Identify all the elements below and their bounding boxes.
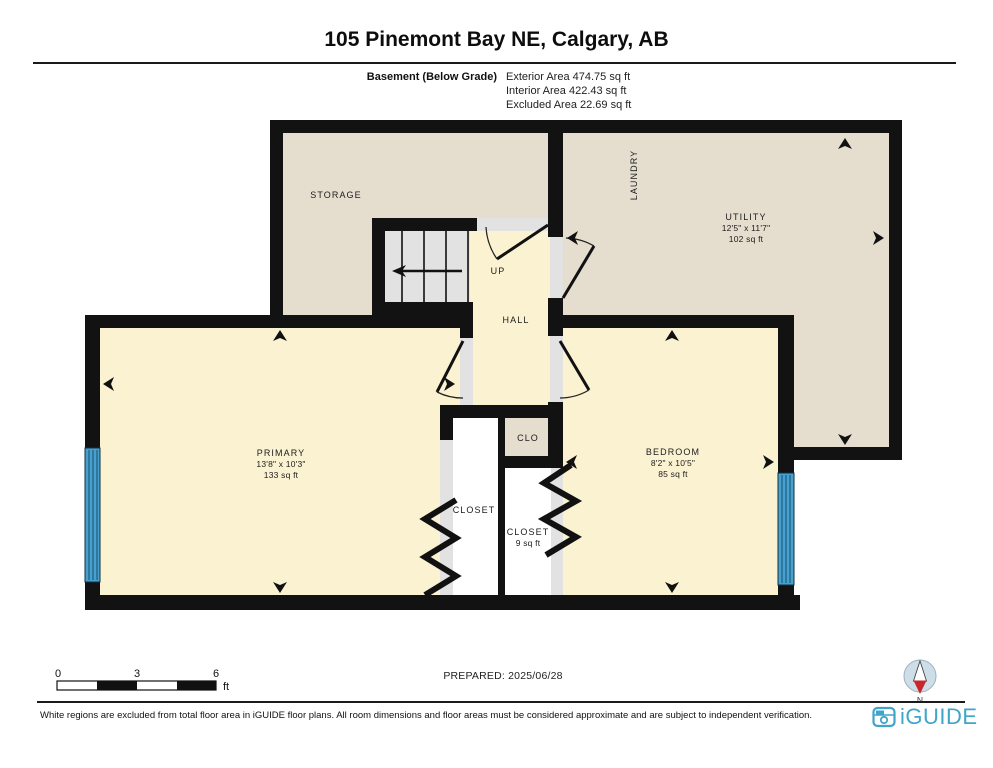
- room-label-hall: HALL: [503, 315, 530, 325]
- wall-closet-divider: [498, 418, 505, 595]
- gap-storage-hall: [477, 218, 548, 231]
- wall-closet-corner-stub: [440, 418, 453, 440]
- room-label-storage: STORAGE: [310, 190, 362, 200]
- footer-divider: [37, 701, 965, 703]
- stairs-floor: [385, 231, 470, 302]
- iguide-logo: iGUIDE: [872, 704, 978, 730]
- room-label-primary: PRIMARY: [257, 448, 306, 458]
- room-label-utility: UTILITY: [725, 212, 766, 222]
- floor-plan-page: 105 Pinemont Bay NE, Calgary, AB Basemen…: [0, 0, 993, 768]
- scale-tick-6: 6: [213, 668, 219, 680]
- wall-utility-right: [889, 120, 902, 460]
- room-label-bedroom: BEDROOM: [646, 447, 700, 457]
- scale-tick-0: 0: [55, 668, 61, 680]
- gap-hall-bedroom: [550, 336, 563, 402]
- scale-bar: 0 3 6 ft: [55, 668, 229, 693]
- gap-hall-primary: [460, 338, 473, 405]
- iguide-wordmark: iGUIDE: [900, 704, 978, 730]
- wall-stair-top: [372, 218, 477, 231]
- wall-clo-top: [440, 405, 563, 418]
- room-dims-primary: 13'8" x 10'3": [256, 459, 305, 469]
- room-label-laundry: LAUNDRY: [629, 150, 639, 201]
- scale-bar-segment: [97, 681, 137, 690]
- wall-primary-top: [85, 315, 460, 328]
- wall-primary-left-upper: [85, 315, 100, 448]
- wall-hall-right-mid: [548, 298, 563, 336]
- room-label-clo: CLO: [517, 433, 539, 443]
- wall-bottom: [85, 595, 800, 610]
- compass: N: [904, 660, 936, 705]
- prepared-date: PREPARED: 2025/06/28: [378, 670, 628, 682]
- room-dims-bedroom: 8'2" x 10'5": [651, 458, 695, 468]
- bedroom-window: [778, 473, 794, 585]
- wall-top: [270, 120, 902, 133]
- wall-storage-left: [270, 120, 283, 328]
- room-label-closet-bedroom: CLOSET: [507, 527, 550, 537]
- wall-utility-bottom: [778, 447, 902, 460]
- wall-bedroom-top: [563, 315, 794, 328]
- floor-plan-drawing: STORAGE LAUNDRY UTILITY 12'5" x 11'7" 10…: [0, 0, 993, 768]
- camera-icon: [872, 706, 896, 728]
- disclaimer-text: White regions are excluded from total fl…: [40, 710, 850, 721]
- room-dims-utility: 12'5" x 11'7": [722, 223, 771, 233]
- room-fills: [100, 133, 889, 595]
- room-area-closet-bedroom: 9 sq ft: [516, 538, 541, 548]
- primary-window: [85, 448, 100, 582]
- gap-hall-utility: [550, 237, 563, 298]
- wall-primary-left-lower: [85, 582, 100, 610]
- scale-bar-segment: [177, 681, 216, 690]
- scale-tick-3: 3: [134, 668, 140, 680]
- stairs-up-label: UP: [491, 266, 506, 276]
- wall-storage-laundry-divider: [548, 120, 563, 237]
- room-label-closet-primary: CLOSET: [453, 505, 496, 515]
- scale-unit: ft: [223, 681, 229, 693]
- room-area-utility: 102 sq ft: [729, 234, 764, 244]
- wall-clo-bottom: [505, 456, 563, 468]
- room-area-primary: 133 sq ft: [264, 470, 299, 480]
- room-area-bedroom: 85 sq ft: [658, 469, 688, 479]
